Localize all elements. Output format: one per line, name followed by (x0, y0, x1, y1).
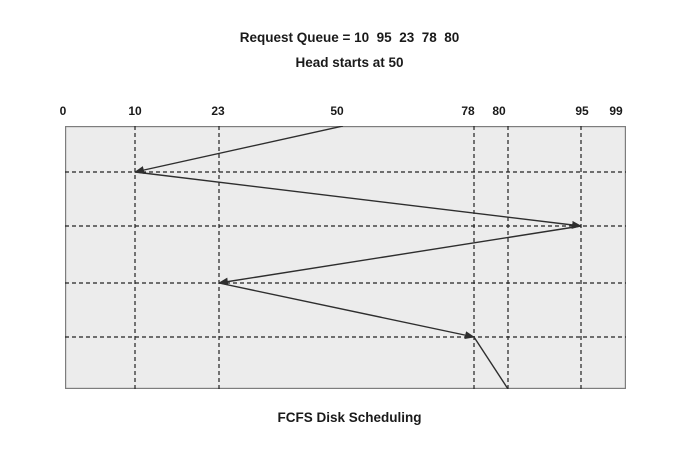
plot-area (66, 127, 626, 389)
axis-tick-label-10: 10 (128, 104, 141, 118)
axis-tick-label-0: 0 (60, 104, 67, 118)
fcfs-chart (65, 126, 626, 389)
axis-tick-label-23: 23 (211, 104, 224, 118)
fcfs-disk-scheduling-figure: Request Queue = 10 95 23 78 80 Head star… (0, 0, 699, 464)
axis-tick-label-80: 80 (492, 104, 505, 118)
axis-tick-label-99: 99 (609, 104, 622, 118)
axis-tick-label-50: 50 (330, 104, 343, 118)
head-start-subtitle: Head starts at 50 (0, 55, 699, 70)
chart-caption: FCFS Disk Scheduling (0, 410, 699, 425)
axis-tick-label-78: 78 (461, 104, 474, 118)
axis-tick-label-95: 95 (575, 104, 588, 118)
request-queue-title: Request Queue = 10 95 23 78 80 (0, 30, 699, 45)
